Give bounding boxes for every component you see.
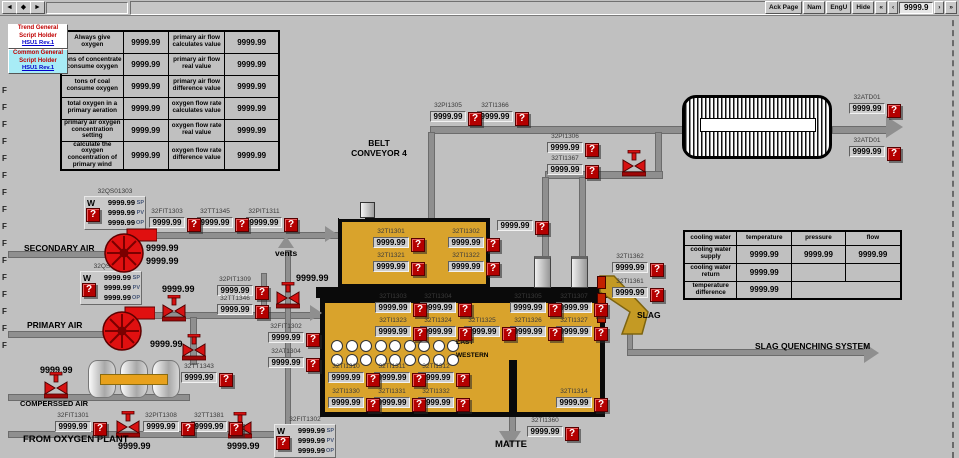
faceplate-value: 9999.99 [91, 198, 135, 207]
titlebar-button--[interactable]: « [875, 1, 887, 14]
tag-label: 32TI1322 [440, 252, 492, 259]
tag-value-readout[interactable]: 9999.99 [217, 304, 253, 315]
flow-arrow-up [278, 236, 294, 248]
tuyere-port [433, 340, 445, 352]
title-blank-field [46, 2, 128, 14]
f-marker: F [2, 188, 7, 197]
tag-label: 32TI1314 [548, 388, 600, 395]
tag-value-readout[interactable]: 9999.99 [547, 164, 583, 175]
f-marker: F [2, 171, 7, 180]
cooling-water-table: cooling watertemperaturepressureflowcool… [683, 230, 902, 300]
title-bar: Ack PageNamEngUHide«‹9999.9›» ◄◆► [0, 0, 959, 16]
tag-label: 32TI1325 [456, 317, 508, 324]
flow-arrow-right [886, 116, 903, 138]
flow-value: 9999.99 [227, 441, 260, 451]
alarm-indicator[interactable]: ? [82, 283, 96, 297]
tuyere-port [375, 340, 387, 352]
script-holder-line1: Common General [9, 50, 67, 58]
alarm-indicator[interactable]: ? [284, 218, 298, 232]
label-comperssed: COMPERSSED AIR [20, 399, 88, 408]
table-cell-empty [792, 281, 846, 299]
alarm-indicator[interactable]: ? [887, 104, 901, 118]
tag-value-readout[interactable]: 9999.99 [268, 332, 304, 343]
titlebar-button-engu[interactable]: EngU [826, 1, 851, 14]
alarm-indicator[interactable]: ? [585, 165, 599, 179]
valve-icon[interactable] [182, 334, 206, 361]
page-number-field[interactable]: 9999.9 [899, 2, 933, 14]
tuyere-port [418, 340, 430, 352]
alarm-indicator[interactable]: ? [255, 305, 269, 319]
table-cell-value [845, 263, 901, 281]
fan-icon[interactable] [103, 227, 157, 273]
tag-label: 32FIT1301 [47, 412, 99, 419]
title-right-controls: Ack PageNamEngUHide«‹9999.9›» [765, 1, 957, 14]
pipe [8, 331, 108, 338]
table-cell-value: 9999.99 [123, 31, 168, 53]
alarm-indicator[interactable]: ? [585, 143, 599, 157]
flow-value: 9999.99 [296, 273, 329, 283]
alarm-indicator[interactable]: ? [413, 327, 427, 341]
table-cell-value: 9999.99 [792, 245, 846, 263]
tag-label: 32TI1332 [410, 388, 462, 395]
table-cell-value: 9999.99 [225, 97, 279, 119]
titlebar-button--[interactable]: ‹ [888, 1, 898, 14]
tag-value-readout[interactable]: 9999.99 [448, 237, 484, 248]
f-marker: F [2, 86, 7, 95]
tag-value-readout[interactable]: 9999.99 [197, 217, 233, 228]
tag-label: 32TI1305 [502, 293, 554, 300]
faceplate-unit: OP [136, 220, 144, 226]
table-cell-value: 9999.99 [225, 75, 279, 97]
tag-value-readout[interactable]: 9999.99 [527, 426, 563, 437]
alarm-indicator[interactable]: ? [366, 373, 380, 387]
f-marker: F [2, 205, 7, 214]
f-marker: F [2, 341, 7, 350]
table-cell-label: primary air oxygen concentration setting [61, 119, 123, 141]
alarm-indicator[interactable]: ? [366, 398, 380, 412]
table-cell-empty [845, 281, 901, 299]
alarm-indicator[interactable]: ? [515, 112, 529, 126]
f-marker: F [2, 307, 7, 316]
f-marker: F [2, 137, 7, 146]
alarm-indicator[interactable]: ? [650, 288, 664, 302]
tag-value-readout[interactable]: 9999.99 [849, 146, 885, 157]
tag-label: 32TI1302 [440, 228, 492, 235]
tag-label: 32PIT1308 [135, 412, 187, 419]
label-western: WESTERN [456, 352, 489, 359]
f-marker: F [2, 222, 7, 231]
faceplate-unit: PV [137, 210, 144, 216]
f-marker: F [2, 324, 7, 333]
tag-label: 32ATD01 [841, 94, 893, 101]
table-cell-label: primary air flow real value [168, 53, 224, 75]
tag-value-readout[interactable]: 9999.99 [375, 302, 411, 313]
alarm-indicator[interactable]: ? [565, 427, 579, 441]
tag-label: 32TT1345 [189, 208, 241, 215]
tag-label: 32TI1366 [469, 102, 521, 109]
table-header: flow [845, 231, 901, 245]
table-cell-label: oxygen flow rate calculates value [168, 97, 224, 119]
table-cell-label: primary air flow calculates value [168, 31, 224, 53]
tag-label: 32TI1312 [410, 363, 462, 370]
tag-value-readout[interactable]: 9999.99 [373, 261, 409, 272]
alarm-indicator[interactable]: ? [486, 238, 500, 252]
tag-label: 32FIT1303 [141, 208, 193, 215]
pipe [832, 126, 890, 134]
table-cell-label: oxygen flow rate real value [168, 119, 224, 141]
titlebar-page-nav-0[interactable]: › [934, 1, 944, 14]
tuyere-port [404, 340, 416, 352]
flow-arrow-right [325, 226, 337, 242]
f-marker: F [2, 154, 7, 163]
tag-value-readout[interactable]: 9999.99 [430, 111, 466, 122]
tag-label: 32TI1304 [412, 293, 464, 300]
table-cell-label: temperature difference [684, 281, 737, 299]
pipe [140, 232, 340, 239]
f-marker: F [2, 273, 7, 282]
alarm-indicator[interactable]: ? [650, 263, 664, 277]
script-holder-line2: Script Holder [9, 33, 67, 41]
pipe [579, 177, 586, 261]
titlebar-button-hide[interactable]: Hide [852, 1, 874, 14]
uptake-stack-2 [571, 256, 588, 288]
table-cell-value: 9999.99 [845, 245, 901, 263]
titlebar-button-nam[interactable]: Nam [803, 1, 825, 14]
alarm-indicator[interactable]: ? [458, 327, 472, 341]
tag-value-readout[interactable]: 9999.99 [510, 302, 546, 313]
table-cell-value: 9999.99 [225, 31, 279, 53]
tag-value-readout[interactable]: 9999.99 [268, 357, 304, 368]
alarm-indicator[interactable]: ? [458, 303, 472, 317]
tag-label: 32ATD01 [841, 137, 893, 144]
fan-icon[interactable] [101, 305, 155, 351]
f-marker: F [2, 239, 7, 248]
faceplate-unit: SP [327, 428, 334, 434]
faceplate-unit: PV [327, 438, 334, 444]
tag-value-readout[interactable]: 9999.99 [181, 372, 217, 383]
oxygen-summary-table: Always give oxygen9999.99primary air flo… [60, 30, 280, 171]
table-cell-value: 9999.99 [737, 281, 792, 299]
flow-arrow-right [310, 305, 322, 321]
table-cell-label: Always give oxygen [61, 31, 123, 53]
tag-value-readout[interactable]: 9999.99 [328, 397, 364, 408]
titlebar-page-nav-1[interactable]: » [945, 1, 957, 14]
tag-value-readout[interactable]: 9999.99 [497, 220, 533, 231]
alarm-indicator[interactable]: ? [306, 358, 320, 372]
tag-label: 32TI1326 [502, 317, 554, 324]
script-holder-version: HSU1 Rev.1 [9, 40, 67, 47]
tag-value-readout[interactable]: 9999.99 [556, 397, 592, 408]
alarm-indicator[interactable]: ? [93, 422, 107, 436]
label-slag: SLAG QUENCHING SYSTEM [755, 341, 870, 351]
faceplate-unit: SP [137, 200, 144, 206]
table-cell-label: calculate the oxygen concentration of pr… [61, 141, 123, 170]
tag-value-readout[interactable]: 9999.99 [328, 372, 364, 383]
tag-label: 32TT1343 [173, 363, 225, 370]
table-cell-value: 9999.99 [123, 119, 168, 141]
flow-value: 9999.99 [162, 284, 195, 294]
pipe [428, 132, 435, 220]
tuyere-port [346, 340, 358, 352]
table-cell-value: 9999.99 [123, 141, 168, 170]
alarm-indicator[interactable]: ? [411, 262, 425, 276]
tag-value-readout[interactable]: 9999.99 [143, 421, 179, 432]
tag-label: 32AT1304 [260, 348, 312, 355]
script-holder-line1: Trend General [9, 25, 67, 33]
tag-label: 32TI1310 [320, 363, 372, 370]
table-cell-label: cooling water supply [684, 245, 737, 263]
tag-value-readout[interactable]: 9999.99 [477, 111, 513, 122]
table-cell-value: 9999.99 [123, 75, 168, 97]
label-matte: MATTE [495, 439, 527, 450]
label-from: FROM OXYGEN PLANT [23, 434, 129, 445]
faceplate-unit: SP [133, 275, 140, 281]
nav-button-2[interactable]: ► [30, 1, 45, 14]
boiler-label [700, 118, 816, 132]
alarm-indicator[interactable]: ? [412, 398, 426, 412]
table-header: cooling water [684, 231, 737, 245]
pipe [542, 177, 549, 261]
alarm-indicator[interactable]: ? [219, 373, 233, 387]
valve-icon[interactable] [44, 372, 68, 399]
alarm-indicator[interactable]: ? [276, 436, 290, 450]
tag-label: 32TI1330 [320, 388, 372, 395]
alarm-indicator[interactable]: ? [412, 373, 426, 387]
tag-label: 32PI1305 [422, 102, 474, 109]
alarm-indicator[interactable]: ? [502, 327, 516, 341]
alarm-indicator[interactable]: ? [456, 373, 470, 387]
f-marker: F [2, 256, 7, 265]
tag-value-readout[interactable]: 9999.99 [373, 237, 409, 248]
tuyere-port [360, 340, 372, 352]
tag-value-readout[interactable]: 9999.99 [547, 142, 583, 153]
table-cell-value: 9999.99 [225, 141, 279, 170]
alarm-indicator[interactable]: ? [86, 208, 100, 222]
tag-label: 32PI1306 [539, 133, 591, 140]
table-cell-label: primary air flow difference value [168, 75, 224, 97]
tag-label: 32FIT1302 [278, 416, 332, 423]
alarm-indicator[interactable]: ? [255, 286, 269, 300]
faceplate-unit: OP [132, 295, 140, 301]
alarm-indicator[interactable]: ? [411, 238, 425, 252]
alarm-indicator[interactable]: ? [887, 147, 901, 161]
alarm-indicator[interactable]: ? [594, 303, 608, 317]
tag-label: 32FIT1302 [260, 323, 312, 330]
table-cell-value [792, 263, 846, 281]
alarm-indicator[interactable]: ? [468, 112, 482, 126]
table-cell-label: tons of concentrate consume oxygen [61, 53, 123, 75]
alarm-indicator[interactable]: ? [235, 218, 249, 232]
table-cell-label: oxygen flow rate difference value [168, 141, 224, 170]
table-header: pressure [792, 231, 846, 245]
table-cell-value: 9999.99 [123, 53, 168, 75]
script-holder-line2: Script Holder [9, 58, 67, 66]
alarm-indicator[interactable]: ? [548, 303, 562, 317]
page-right-edge [952, 0, 954, 458]
tag-label: 32TI1360 [519, 417, 571, 424]
alarm-indicator[interactable]: ? [535, 221, 549, 235]
tag-label: 32TI1327 [548, 317, 600, 324]
f-marker: F [2, 120, 7, 129]
alarm-indicator[interactable]: ? [187, 218, 201, 232]
hmi-screen: Ack PageNamEngUHide«‹9999.9›» ◄◆► FFFFFF… [0, 0, 959, 458]
feed-stack [360, 202, 375, 218]
tag-value-readout[interactable]: 9999.99 [246, 217, 282, 228]
table-cell-value: 9999.99 [225, 119, 279, 141]
furnace-inner-wall [509, 360, 517, 412]
nav-button-0[interactable]: ◄ [2, 1, 17, 14]
tuyere-port [331, 340, 343, 352]
table-header: temperature [737, 231, 792, 245]
table-cell-label: total oxygen in a primary aeration [61, 97, 123, 119]
tag-value-readout[interactable]: 9999.99 [55, 421, 91, 432]
table-cell-label: tons of coal consume oxygen [61, 75, 123, 97]
tag-label: 32TI1361 [604, 278, 656, 285]
label-slag: SLAG [637, 310, 661, 320]
valve-icon[interactable] [162, 295, 186, 322]
f-marker: F [2, 103, 7, 112]
faceplate-unit: PV [133, 285, 140, 291]
alarm-indicator[interactable]: ? [594, 398, 608, 412]
label-belt: BELT CONVEYOR 4 [336, 138, 422, 158]
titlebar-button-ack-page[interactable]: Ack Page [765, 1, 802, 14]
pipe [655, 132, 662, 174]
tag-value-readout[interactable]: 9999.99 [849, 103, 885, 114]
alarm-indicator[interactable]: ? [181, 422, 195, 436]
tag-label: 32TT1346 [209, 295, 261, 302]
faceplate-value: 9999.99 [281, 426, 325, 435]
script-holder-button-1[interactable]: Common GeneralScript HolderHSU1 Rev.1 [8, 49, 68, 74]
tag-label: 32TI1301 [365, 228, 417, 235]
table-cell-value: 9999.99 [737, 245, 792, 263]
tag-label: 32QS01303 [88, 188, 142, 195]
alarm-indicator[interactable]: ? [306, 333, 320, 347]
pressure-vessel-label [100, 374, 168, 385]
nav-button-1[interactable]: ◆ [16, 1, 31, 14]
tag-label: 32TI1362 [604, 253, 656, 260]
table-cell-value: 9999.99 [225, 53, 279, 75]
label-vents: vents [275, 248, 297, 258]
script-holder-version: HSU1 Rev.1 [9, 65, 67, 72]
faceplate-unit: OP [326, 448, 334, 454]
alarm-indicator[interactable]: ? [456, 398, 470, 412]
script-holder-button-0[interactable]: Trend GeneralScript HolderHSU1 Rev.1 [8, 24, 68, 49]
tag-label: 32TI1367 [539, 155, 591, 162]
tag-value-readout[interactable]: 9999.99 [612, 287, 648, 298]
alarm-indicator[interactable]: ? [229, 422, 243, 436]
table-cell-value: 9999.99 [737, 263, 792, 281]
tag-value-readout[interactable]: 9999.99 [375, 326, 411, 337]
alarm-indicator[interactable]: ? [594, 327, 608, 341]
valve-icon[interactable] [276, 282, 300, 309]
tag-value-readout[interactable]: 9999.99 [448, 261, 484, 272]
f-marker: F [2, 290, 7, 299]
tag-label: 32TI1307 [548, 293, 600, 300]
tag-value-readout[interactable]: 9999.99 [191, 421, 227, 432]
label-primary: PRIMARY AIR [27, 320, 82, 330]
tag-label: 32PIT1309 [209, 276, 261, 283]
table-cell-label: cooling water return [684, 263, 737, 281]
alarm-indicator[interactable]: ? [548, 327, 562, 341]
tag-label: 32TI1321 [365, 252, 417, 259]
faceplate-value: 9999.99 [87, 273, 131, 282]
alarm-indicator[interactable]: ? [486, 262, 500, 276]
valve-icon[interactable] [622, 150, 646, 177]
table-cell-value: 9999.99 [123, 97, 168, 119]
alarm-indicator[interactable]: ? [413, 303, 427, 317]
page-title [130, 1, 800, 15]
tag-value-readout[interactable]: 9999.99 [612, 262, 648, 273]
tuyere-port [389, 340, 401, 352]
tag-label: 32PIT1311 [238, 208, 290, 215]
uptake-stack-1 [534, 256, 551, 288]
label-secondary: SECONDARY AIR [24, 243, 95, 253]
